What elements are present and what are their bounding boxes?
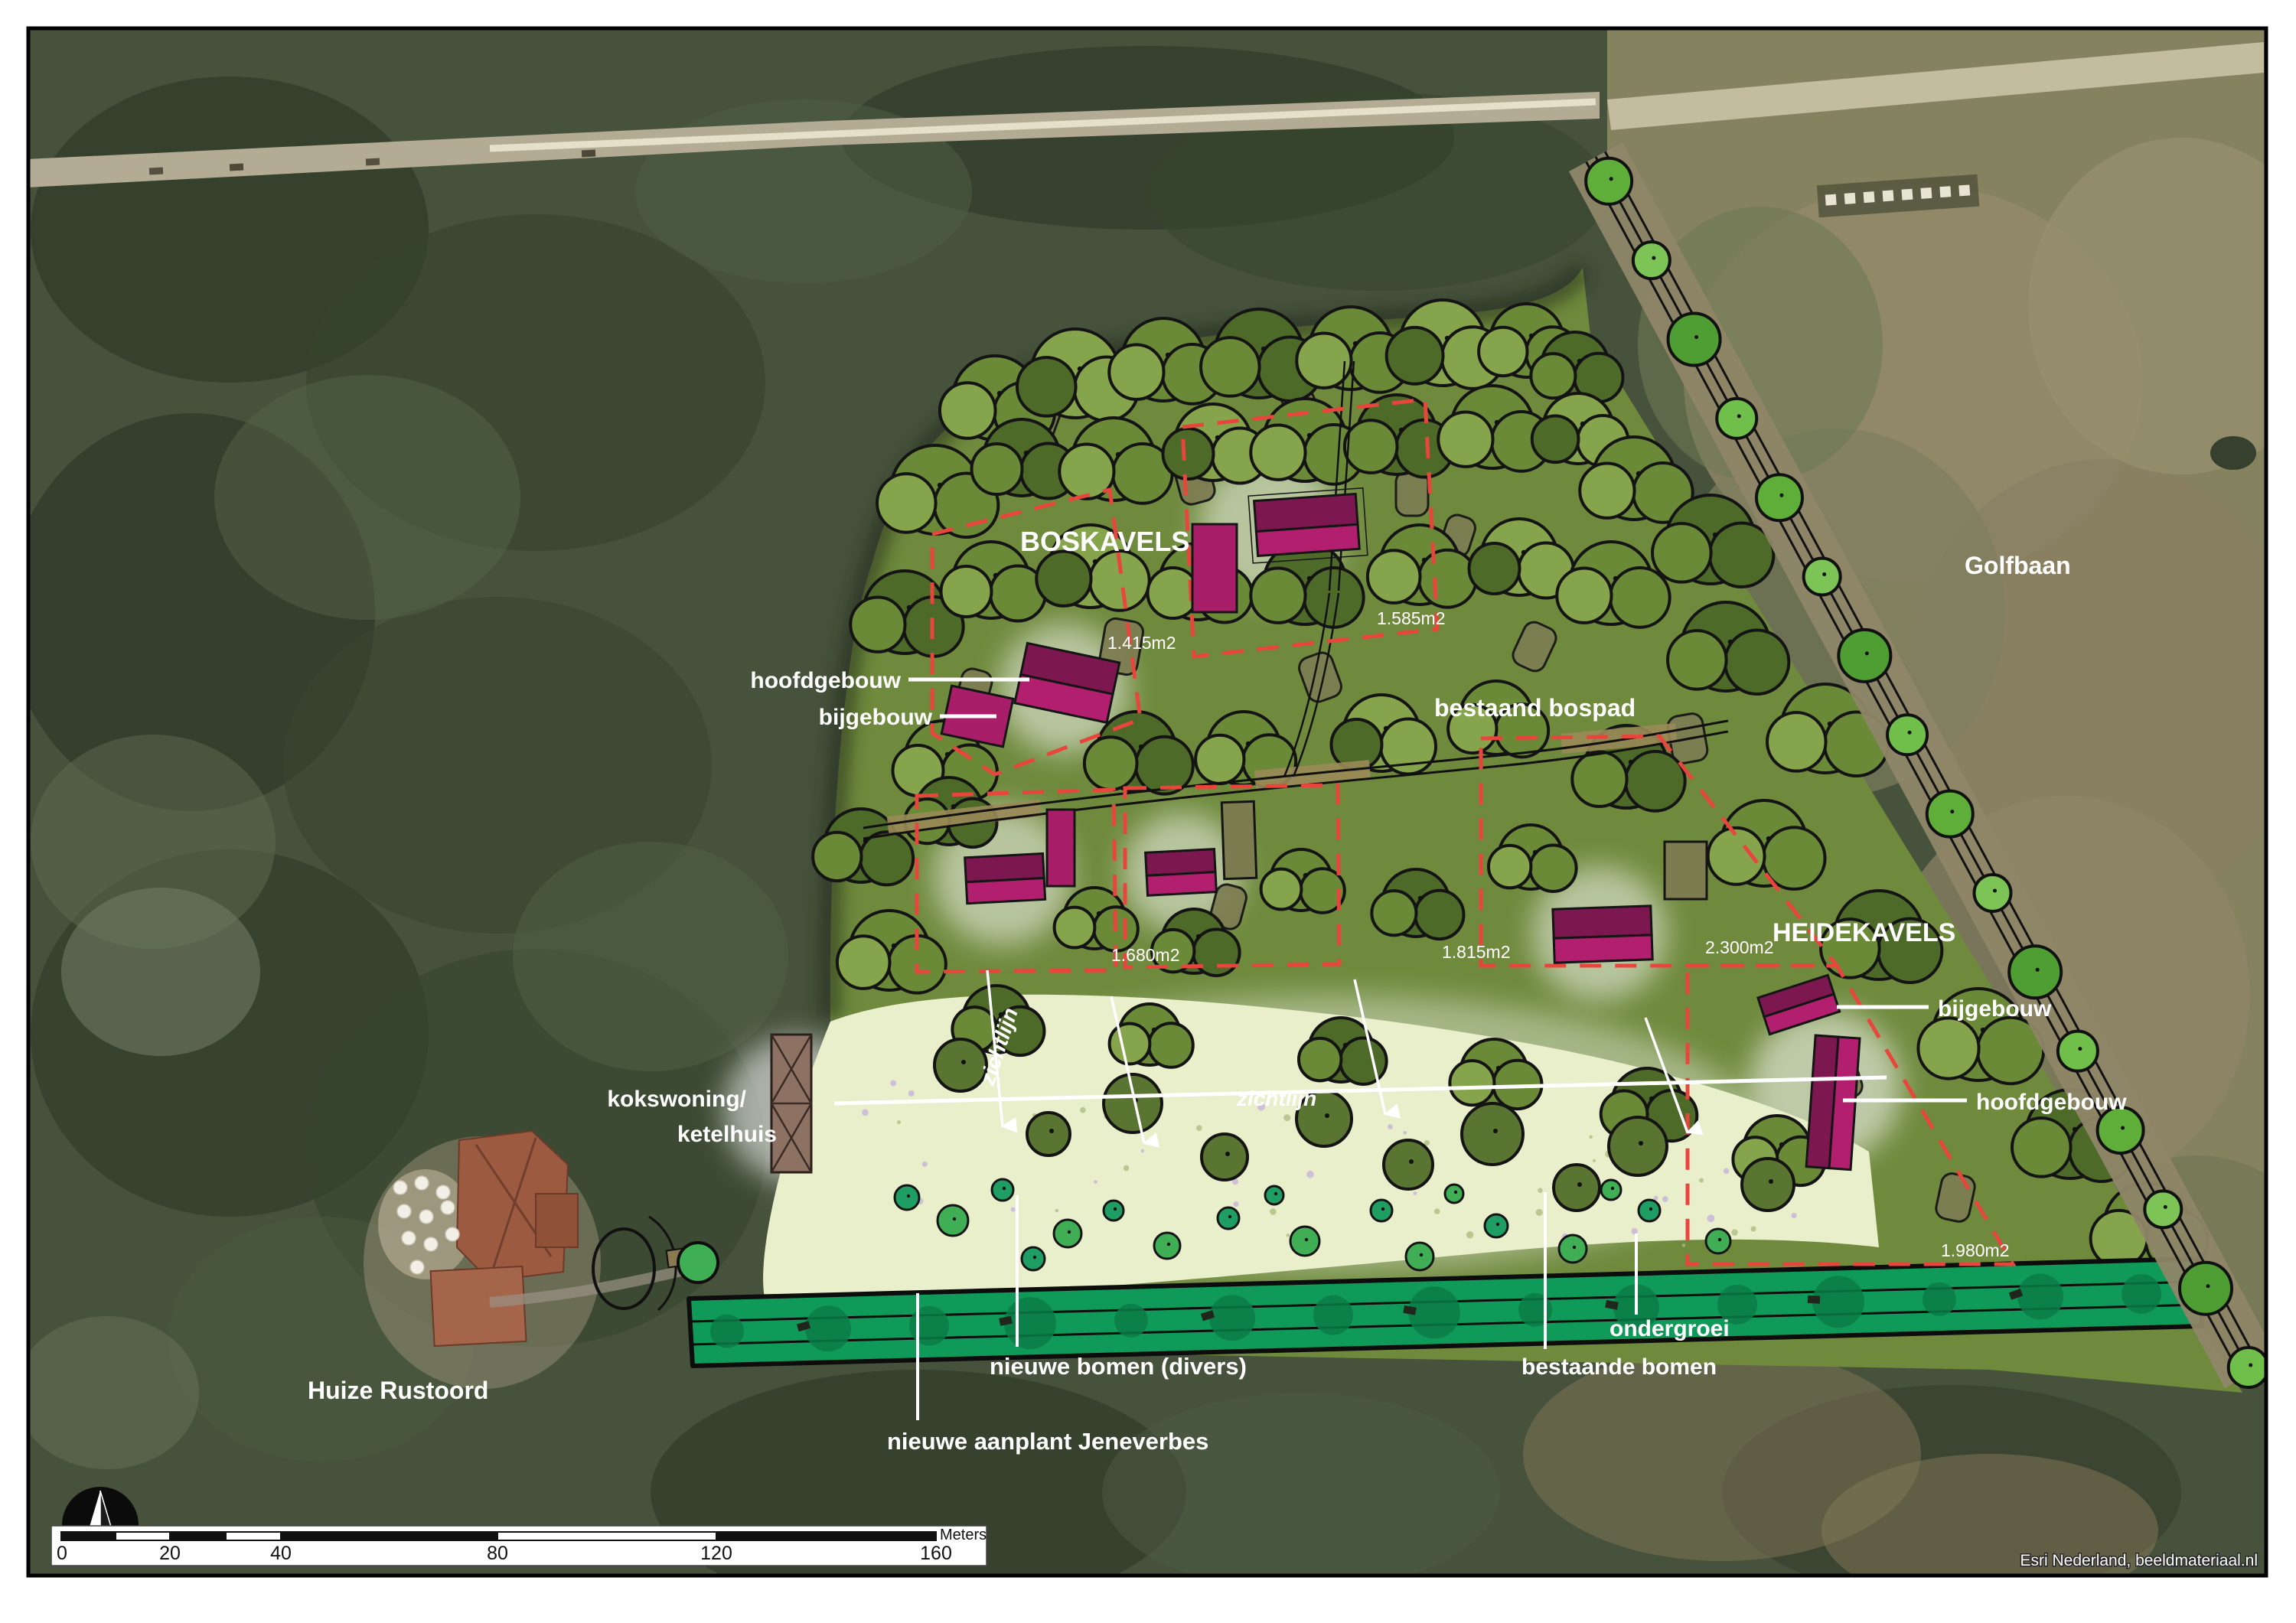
attribution-text: Esri Nederland, beeldmateriaal.nl bbox=[2020, 1552, 2258, 1569]
scale-tick-160: 160 bbox=[920, 1543, 952, 1564]
label-kokswoning: kokswoning/ bbox=[607, 1087, 746, 1112]
label-ondergroei: ondergroei bbox=[1609, 1316, 1730, 1341]
area-label-1815: 1.815m2 bbox=[1442, 942, 1511, 962]
hoofdgebouw-kavel-midden-2 bbox=[1146, 849, 1217, 896]
label-bijgebouw-left: bijgebouw bbox=[819, 705, 933, 730]
scale-tick-20: 20 bbox=[159, 1543, 181, 1564]
scale-tick-120: 120 bbox=[700, 1543, 732, 1564]
hoofdgebouw-kavel-midden-1 bbox=[965, 853, 1045, 903]
area-label-1980: 1.980m2 bbox=[1941, 1240, 2010, 1260]
scale-tick-40: 40 bbox=[270, 1543, 292, 1564]
mansion-annex-roof bbox=[536, 1194, 578, 1247]
scale-unit: Meters bbox=[940, 1527, 987, 1543]
site-plan-page: BOSKAVELS HEIDEKAVELS Golfbaan Huize Rus… bbox=[0, 0, 2296, 1623]
scale-bar-segments bbox=[61, 1532, 936, 1540]
label-huize-rustoord: Huize Rustoord bbox=[308, 1377, 488, 1404]
open-plot-2 bbox=[1665, 842, 1707, 899]
hoofdgebouw-heidekavel bbox=[1806, 1035, 1860, 1170]
label-nieuwe-aanplant: nieuwe aanplant Jeneverbes bbox=[887, 1428, 1208, 1455]
hoofdgebouw-heidekavel-groot bbox=[1553, 906, 1652, 963]
area-label-1680: 1.680m2 bbox=[1111, 945, 1180, 965]
bijgebouw-kavel-midden-1 bbox=[1047, 810, 1075, 886]
scale-tick-80: 80 bbox=[487, 1543, 508, 1564]
kokswoning-ketelhuis-building bbox=[771, 1035, 811, 1172]
label-hoofdgebouw-right: hoofdgebouw bbox=[1976, 1090, 2127, 1115]
scale-tick-0: 0 bbox=[57, 1543, 67, 1564]
bijgebouw-boskavel-noord bbox=[1192, 524, 1237, 612]
hedge-end-tree bbox=[678, 1243, 718, 1282]
label-hoofdgebouw-left: hoofdgebouw bbox=[750, 668, 901, 693]
label-nieuwe-bomen: nieuwe bomen (divers) bbox=[990, 1353, 1247, 1380]
area-label-1585: 1.585m2 bbox=[1377, 608, 1446, 628]
scale-bar: Meters 0 20 40 80 120 160 bbox=[51, 1526, 987, 1566]
open-plot-1 bbox=[1221, 801, 1256, 878]
label-bestaande-bomen: bestaande bomen bbox=[1521, 1354, 1717, 1380]
label-bijgebouw-right: bijgebouw bbox=[1938, 996, 2052, 1022]
label-zichtlijn-horizontal: zichtlijn bbox=[1236, 1087, 1316, 1110]
label-bestaand-bospad: bestaand bospad bbox=[1434, 694, 1636, 722]
label-golfbaan: Golfbaan bbox=[1965, 552, 2071, 579]
site-plan-map: BOSKAVELS HEIDEKAVELS Golfbaan Huize Rus… bbox=[0, 0, 2296, 1623]
pond bbox=[2210, 436, 2256, 470]
label-ketelhuis: ketelhuis bbox=[677, 1122, 777, 1147]
area-label-1415: 1.415m2 bbox=[1107, 633, 1176, 653]
mansion-wing-roof bbox=[431, 1266, 527, 1346]
label-boskavels: BOSKAVELS bbox=[1020, 526, 1189, 557]
area-label-2300: 2.300m2 bbox=[1705, 937, 1774, 957]
label-heidekavels: HEIDEKAVELS bbox=[1773, 918, 1955, 947]
